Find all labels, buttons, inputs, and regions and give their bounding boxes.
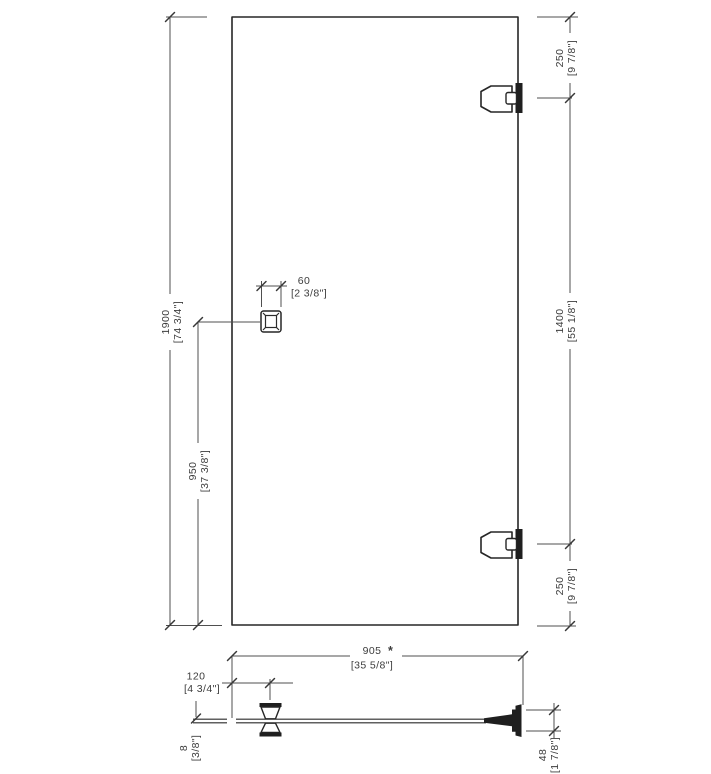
dim-value-mm: 120 <box>187 671 206 683</box>
dim-value-mm: 8 <box>178 745 190 751</box>
dim-label-hinge-spacing: 1400 [55 1/8"] <box>554 300 578 342</box>
dim-label-handle-height: 950 [37 3/8"] <box>187 450 211 492</box>
top-hinge <box>481 83 523 113</box>
dim-value-inches: [55 1/8"] <box>566 300 578 342</box>
dim-label-handle-offset: 120 [4 3/4"] <box>184 671 220 696</box>
hinge-screw-cover <box>506 93 517 105</box>
dim-value-inches: [3/8"] <box>190 735 202 762</box>
hinge-screw-cover <box>506 539 517 551</box>
hinge-plate-section <box>512 704 522 737</box>
dim-value-inches: [37 3/8"] <box>199 450 211 492</box>
knob-inner <box>266 316 277 328</box>
section-view <box>193 703 522 737</box>
dim-value-mm: 905 <box>363 645 382 657</box>
glass-door-technical-drawing: 1900 [74 3/4"] 950 [37 3/8"] 250 [9 7/8"… <box>0 0 711 774</box>
dim-value-mm: 1400 <box>554 309 566 334</box>
dimension-arrows <box>166 13 575 736</box>
dim-label-glass-thickness: 8 [3/8"] <box>178 735 202 762</box>
dim-value-inches: [4 3/4"] <box>184 683 220 695</box>
hinge-arm-section <box>484 714 512 726</box>
dim-value-mm: 48 <box>537 749 549 761</box>
door-knob-front <box>261 311 281 332</box>
dim-value-mm: 60 <box>298 275 310 287</box>
dim-value-mm: 250 <box>554 577 566 596</box>
dim-label-handle-width: 60 [2 3/8"] <box>291 275 327 300</box>
dim-value-inches: [35 5/8"] <box>351 660 393 672</box>
width-note-asterisk: * <box>388 644 393 658</box>
dim-value-inches: [9 7/8"] <box>566 40 578 76</box>
glass-extension-stub <box>193 719 227 723</box>
dim-value-mm: 250 <box>554 49 566 68</box>
dim-label-bottom-hinge-offset: 250 [9 7/8"] <box>554 568 578 604</box>
door-glass-outline <box>232 17 518 625</box>
dim-value-inches: [74 3/4"] <box>172 301 184 343</box>
dim-value-inches: [9 7/8"] <box>566 568 578 604</box>
hinge-section <box>484 704 522 737</box>
dim-value-inches: [2 3/8"] <box>291 288 327 300</box>
glass-section <box>236 719 486 723</box>
dim-value-mm: 950 <box>187 462 199 481</box>
dim-label-door-height: 1900 [74 3/4"] <box>160 301 184 343</box>
dim-value-inches: [1 7/8"] <box>549 737 561 773</box>
dim-value-mm: 1900 <box>160 310 172 335</box>
bottom-hinge <box>481 529 523 559</box>
drawing-canvas: 1900 [74 3/4"] 950 [37 3/8"] 250 [9 7/8"… <box>0 0 711 774</box>
door-panel <box>232 17 518 625</box>
dim-label-top-hinge-offset: 250 [9 7/8"] <box>554 40 578 76</box>
dim-label-door-width: 905 * [35 5/8"] <box>351 644 393 672</box>
dim-label-hinge-depth: 48 [1 7/8"] <box>537 737 561 773</box>
